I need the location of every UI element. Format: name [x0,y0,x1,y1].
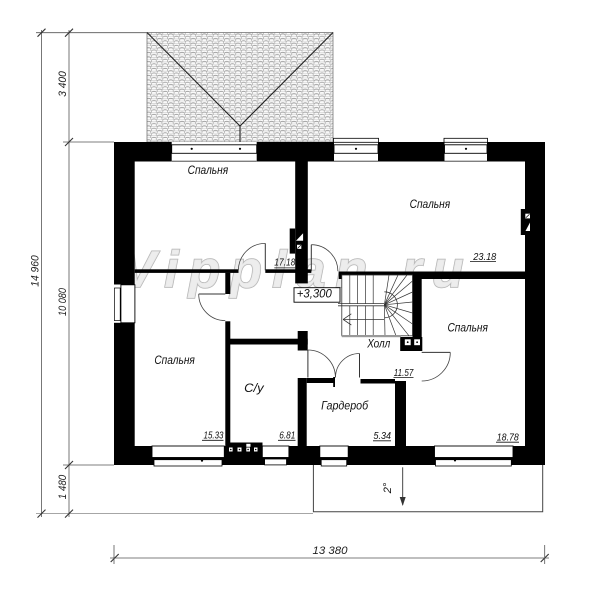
svg-text:17.18: 17.18 [274,258,295,269]
svg-text:11.57: 11.57 [394,368,414,379]
svg-text:Холл: Холл [366,337,390,351]
svg-text:Спальня: Спальня [447,321,488,335]
svg-text:Гардероб: Гардероб [321,399,369,413]
svg-text:5.34: 5.34 [374,431,392,442]
svg-text:14 960: 14 960 [30,254,42,286]
svg-text:Спальня: Спальня [154,353,195,367]
svg-text:3 400: 3 400 [57,70,69,96]
svg-text:+3,300: +3,300 [297,289,333,301]
svg-text:15.33: 15.33 [204,431,224,442]
svg-text:18.78: 18.78 [497,432,519,443]
svg-text:1 480: 1 480 [57,474,69,499]
svg-text:2°: 2° [382,482,394,494]
svg-text:13 380: 13 380 [313,545,349,557]
svg-text:6.81: 6.81 [279,431,295,442]
svg-text:Спальня: Спальня [410,197,451,211]
svg-text:С/у: С/у [244,381,264,395]
svg-text:10 080: 10 080 [57,287,69,316]
svg-text:Спальня: Спальня [188,163,229,177]
